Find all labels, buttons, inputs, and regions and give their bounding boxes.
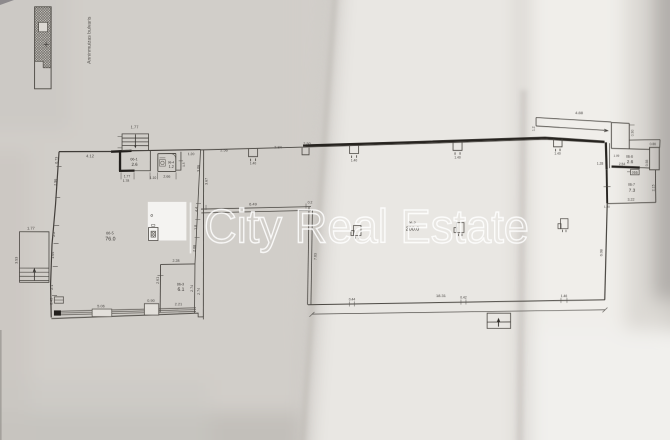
svg-text:1.04: 1.04 [51, 252, 55, 259]
svg-text:1.78: 1.78 [123, 179, 130, 183]
svg-text:06-6: 06-6 [626, 155, 633, 159]
svg-text:1.77: 1.77 [131, 124, 140, 129]
svg-text:2.74: 2.74 [197, 288, 201, 295]
svg-text:06-3: 06-3 [177, 282, 184, 286]
svg-text:0.44: 0.44 [349, 298, 356, 302]
svg-text:18.31: 18.31 [436, 293, 447, 298]
svg-text:1.2: 1.2 [169, 165, 174, 169]
svg-text:7.63: 7.63 [313, 253, 317, 260]
svg-text:2.50: 2.50 [303, 142, 310, 146]
svg-text:2.74: 2.74 [190, 285, 194, 292]
svg-text:2.2: 2.2 [52, 232, 56, 237]
svg-text:2.08: 2.08 [192, 245, 196, 252]
svg-text:1.77: 1.77 [27, 226, 36, 231]
svg-text:2.61: 2.61 [156, 277, 160, 284]
svg-text:2.15: 2.15 [651, 185, 655, 192]
svg-text:2.6: 2.6 [131, 162, 138, 167]
svg-text:0.45: 0.45 [49, 298, 53, 305]
svg-text:0.73: 0.73 [55, 157, 59, 164]
svg-text:1.40: 1.40 [554, 152, 561, 156]
svg-text:3.06: 3.06 [197, 165, 201, 172]
svg-text:2.1: 2.1 [50, 285, 54, 290]
svg-text:1.28: 1.28 [597, 162, 604, 166]
svg-text:2.6: 2.6 [627, 159, 634, 164]
svg-text:0.42: 0.42 [460, 296, 467, 300]
svg-text:1.09: 1.09 [614, 154, 620, 158]
svg-text:1.40: 1.40 [351, 159, 358, 163]
svg-text:2.54: 2.54 [619, 162, 626, 166]
svg-text:4.12: 4.12 [86, 153, 95, 158]
svg-text:06-7: 06-7 [628, 183, 635, 187]
svg-text:3.53: 3.53 [14, 257, 18, 264]
svg-text:1.10: 1.10 [150, 176, 157, 180]
svg-text:06-4: 06-4 [168, 160, 174, 164]
svg-text:3.67: 3.67 [205, 178, 209, 185]
svg-text:1.2: 1.2 [532, 126, 536, 131]
svg-text:4.4: 4.4 [195, 207, 199, 212]
svg-text:2.56: 2.56 [220, 148, 227, 152]
svg-text:2.96: 2.96 [54, 179, 58, 186]
svg-text:1.8: 1.8 [194, 225, 198, 230]
svg-text:1.20: 1.20 [188, 152, 195, 156]
svg-text:06-1: 06-1 [130, 157, 137, 161]
svg-text:6.1: 6.1 [177, 287, 184, 293]
svg-text:2.21: 2.21 [175, 302, 182, 306]
svg-text:5.06: 5.06 [97, 304, 104, 308]
svg-text:0.86: 0.86 [650, 142, 657, 146]
svg-text:2.66: 2.66 [163, 175, 170, 179]
svg-text:6.08: 6.08 [599, 249, 603, 256]
svg-text:4.88: 4.88 [575, 110, 584, 115]
svg-text:1.40: 1.40 [454, 155, 461, 159]
svg-text:066: 066 [632, 171, 638, 175]
svg-text:0.90: 0.90 [147, 299, 154, 303]
svg-text:1.77: 1.77 [124, 174, 131, 178]
svg-text:1.40: 1.40 [250, 162, 257, 166]
svg-text:2.28: 2.28 [172, 259, 179, 263]
svg-text:7.3: 7.3 [629, 188, 636, 193]
svg-text:City Real Estate: City Real Estate [204, 199, 529, 252]
svg-text:3.22: 3.22 [628, 198, 635, 202]
svg-text:Anninmuizas bulvaris: Anninmuizas bulvaris [87, 16, 93, 64]
svg-text:0.90: 0.90 [631, 129, 635, 136]
svg-text:0.98: 0.98 [645, 160, 649, 167]
svg-text:06-5: 06-5 [106, 231, 114, 235]
svg-text:1.46: 1.46 [561, 294, 568, 298]
svg-text:1.5: 1.5 [182, 162, 186, 167]
svg-text:76.0: 76.0 [105, 236, 115, 242]
svg-text:2.84: 2.84 [274, 146, 281, 150]
